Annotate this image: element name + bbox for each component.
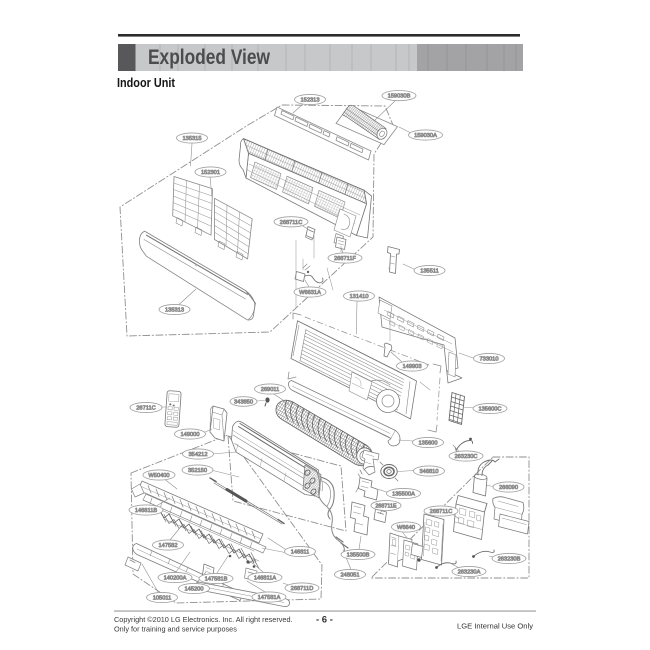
svg-text:268711F: 268711F <box>334 256 357 262</box>
svg-text:26711C: 26711C <box>136 406 156 412</box>
svg-text:733010: 733010 <box>480 357 499 363</box>
svg-text:- 6 -: - 6 - <box>316 615 333 626</box>
svg-text:146811A: 146811A <box>254 576 277 582</box>
svg-text:W6631A: W6631A <box>299 290 321 296</box>
svg-text:147582: 147582 <box>159 543 178 549</box>
svg-text:147581B: 147581B <box>205 577 228 583</box>
svg-text:105011: 105011 <box>153 596 172 602</box>
svg-text:145200: 145200 <box>185 587 204 593</box>
svg-text:135500B: 135500B <box>347 553 370 559</box>
svg-text:268711E: 268711E <box>375 504 397 510</box>
svg-text:Indoor Unit: Indoor Unit <box>117 76 176 90</box>
svg-text:Only for training and service: Only for training and service purposes <box>114 625 237 634</box>
svg-text:263230C: 263230C <box>454 454 477 460</box>
svg-text:146811: 146811 <box>291 550 310 556</box>
svg-text:135500A: 135500A <box>392 492 415 498</box>
svg-text:135600C: 135600C <box>478 407 501 413</box>
svg-text:W50400: W50400 <box>148 473 169 479</box>
svg-text:354212: 354212 <box>189 452 208 458</box>
svg-text:268711C: 268711C <box>430 509 453 515</box>
svg-text:W6640: W6640 <box>397 525 415 531</box>
svg-text:149903: 149903 <box>403 364 422 370</box>
svg-text:135315: 135315 <box>183 136 202 142</box>
svg-text:147581A: 147581A <box>258 595 281 601</box>
svg-text:268711D: 268711D <box>291 586 314 592</box>
svg-text:266090: 266090 <box>499 485 518 491</box>
svg-text:152313: 152313 <box>301 98 320 104</box>
svg-text:135313: 135313 <box>165 308 184 314</box>
svg-text:135511: 135511 <box>420 269 439 275</box>
svg-text:Copyright ©2010 LG Electronics: Copyright ©2010 LG Electronics. Inc. All… <box>114 615 293 624</box>
svg-text:269011: 269011 <box>261 387 280 393</box>
svg-text:Exploded View: Exploded View <box>148 46 271 69</box>
svg-text:159030B: 159030B <box>388 94 411 100</box>
svg-text:131410: 131410 <box>350 294 369 300</box>
svg-text:159030A: 159030A <box>414 133 437 139</box>
svg-text:263230A: 263230A <box>458 570 481 576</box>
svg-text:268711C: 268711C <box>280 220 303 226</box>
svg-text:135600: 135600 <box>419 441 438 447</box>
svg-text:146811B: 146811B <box>135 508 158 514</box>
svg-text:152301: 152301 <box>201 170 220 176</box>
svg-text:263230B: 263230B <box>498 557 521 563</box>
svg-text:248051: 248051 <box>341 573 360 579</box>
svg-text:343850: 343850 <box>234 400 253 406</box>
svg-text:352150: 352150 <box>188 468 207 474</box>
svg-text:346810: 346810 <box>420 469 439 475</box>
svg-text:LGE Internal Use Only: LGE Internal Use Only <box>457 622 533 631</box>
svg-text:140200A: 140200A <box>164 576 187 582</box>
svg-text:149000: 149000 <box>181 432 200 438</box>
